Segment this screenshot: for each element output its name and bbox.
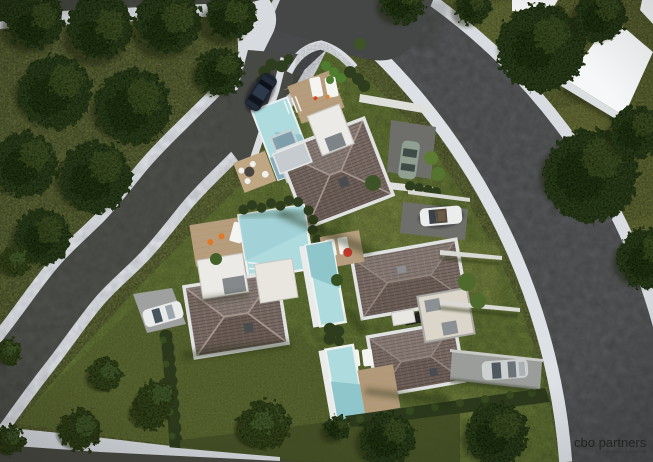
svg-text:mimarlik | muhendislik: mimarlik | muhendislik [603,449,648,454]
svg-text:cbo partners: cbo partners [574,435,647,450]
